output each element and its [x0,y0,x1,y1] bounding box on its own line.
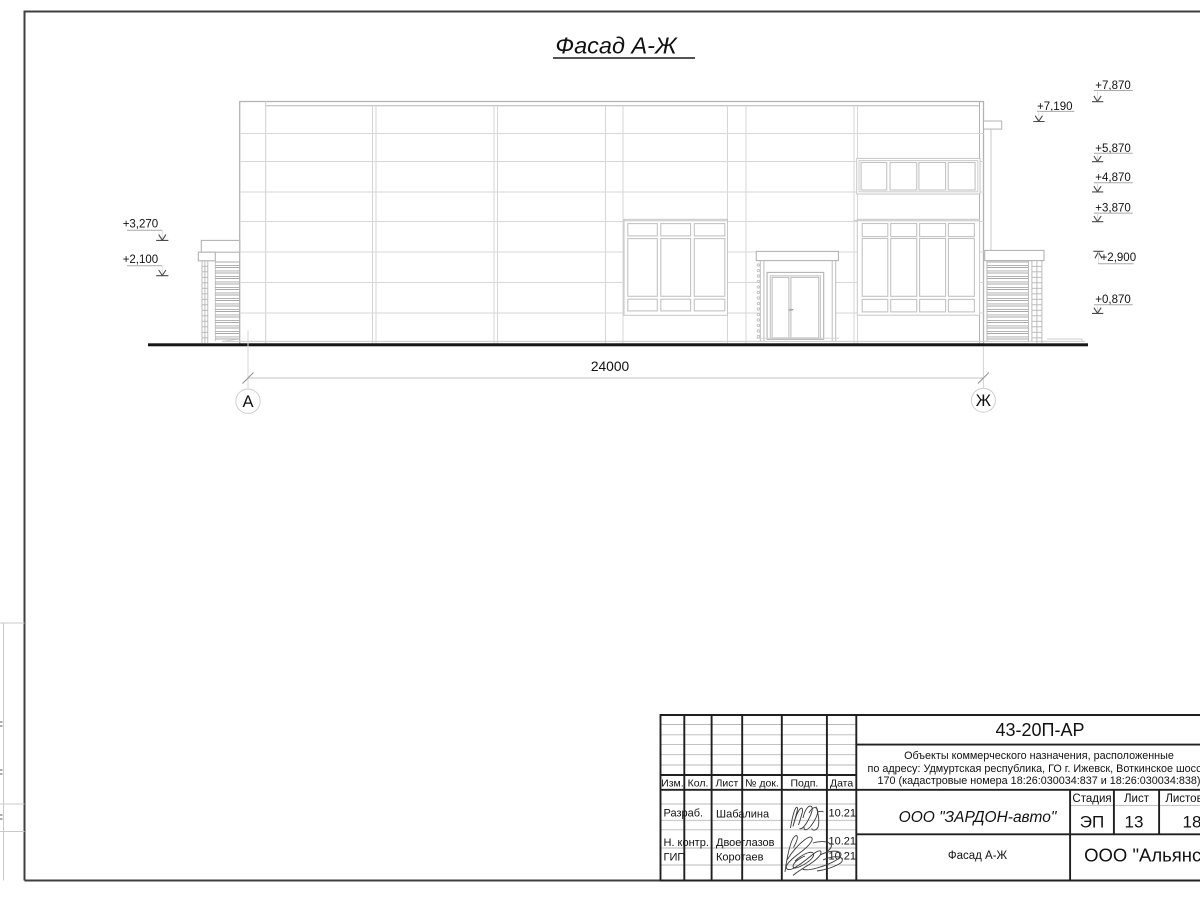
svg-text:Подп.: Подп. [790,777,818,789]
svg-text:24000: 24000 [591,359,630,374]
svg-text:Объекты коммерческого назначен: Объекты коммерческого назначения, распол… [904,750,1174,762]
svg-text:+2,100: +2,100 [123,254,159,266]
svg-text:13: 13 [1125,813,1144,832]
svg-text:Ж: Ж [976,392,992,410]
svg-text:Двоеглазов: Двоеглазов [716,837,775,849]
svg-text:Листов: Листов [1165,793,1200,805]
svg-text:ЭП: ЭП [1080,813,1104,832]
svg-text:Коротаев: Коротаев [716,852,764,864]
svg-text:№ док.: № док. [745,777,779,789]
svg-text:ГИП: ГИП [664,852,686,864]
svg-text:10.21: 10.21 [829,836,857,848]
svg-text:10.21: 10.21 [829,808,857,820]
svg-text:Изм.: Изм. [661,777,684,789]
svg-text:Шабалина: Шабалина [716,808,770,820]
svg-text:по адресу: Удмуртская республи: по адресу: Удмуртская республика, ГО г. … [867,763,1200,775]
svg-text:Лист: Лист [715,777,738,789]
svg-text:Кол.: Кол. [688,777,709,789]
svg-text:Дата: Дата [830,777,853,789]
svg-text:43-20П-АР: 43-20П-АР [996,720,1085,740]
svg-text:Разраб.: Разраб. [664,807,704,819]
svg-text:ООО "Альянс": ООО "Альянс" [1084,845,1200,866]
svg-text:Стадия: Стадия [1072,793,1111,805]
svg-text:Фасад А-Ж: Фасад А-Ж [555,33,678,59]
svg-text:Фасад А-Ж: Фасад А-Ж [948,850,1008,862]
svg-text:А: А [242,393,253,411]
svg-text:18: 18 [1183,813,1200,832]
svg-text:+3,270: +3,270 [123,218,159,230]
svg-text:170 (кадастровые номера 18:26:: 170 (кадастровые номера 18:26:030034:837… [878,775,1200,787]
svg-text:Лист: Лист [1124,793,1150,805]
svg-text:Н. контр.: Н. контр. [664,837,709,849]
svg-text:+2,900: +2,900 [1101,252,1137,264]
svg-text:ООО "ЗАРДОН-авто": ООО "ЗАРДОН-авто" [899,809,1058,826]
